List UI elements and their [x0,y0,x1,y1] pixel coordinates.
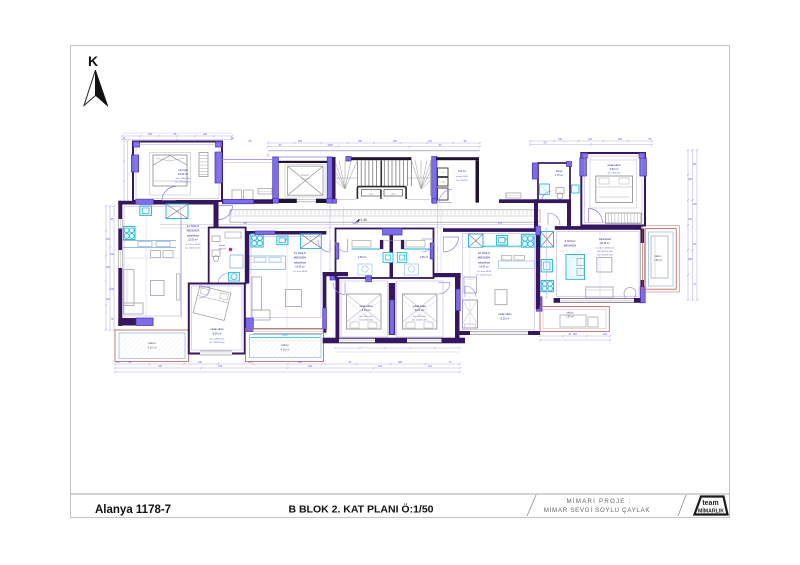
svg-text:148: 148 [218,365,223,368]
svg-text:140: 140 [243,222,248,225]
svg-text:150: 150 [558,138,563,141]
svg-text:yatak odası: yatak odası [359,304,373,308]
svg-text:4.20 m²: 4.20 m² [148,346,157,350]
svg-text:kln 120/200 den: kln 120/200 den [476,275,492,277]
svg-text:230: 230 [106,298,111,301]
svg-text:mak.: mak. [441,182,446,184]
svg-text:305: 305 [358,140,363,143]
svg-text:19.00 m²: 19.00 m² [479,266,489,269]
svg-text:110: 110 [428,365,432,368]
svg-text:1035: 1035 [327,144,333,147]
svg-text:11 NOLU: 11 NOLU [187,224,199,228]
svg-text:2+1 dsm 28/50 den: 2+1 dsm 28/50 den [596,248,616,250]
svg-text:130: 130 [378,365,383,368]
svg-text:sahanlıktan: sahanlıktan [599,238,612,241]
svg-text:8.20 m²: 8.20 m² [415,308,424,312]
svg-text:dsm 28/50 den: dsm 28/50 den [210,339,225,341]
svg-text:MESKEN: MESKEN [294,256,307,260]
svg-text:20.36 m²: 20.36 m² [600,242,610,245]
svg-text:255: 255 [298,140,303,143]
svg-text:balkon: balkon [566,312,574,315]
svg-text:y.angi 55/85: y.angi 55/85 [456,176,469,178]
svg-text:255: 255 [573,333,578,336]
svg-text:kln 120/200 den: kln 120/200 den [412,319,426,321]
svg-text:190: 190 [148,133,153,136]
svg-text:kln 120/200 den: kln 120/200 den [185,248,201,250]
svg-text:260: 260 [618,138,623,141]
svg-text:kln 120/200 den: kln 120/200 den [209,342,225,344]
svg-text:240: 240 [308,365,313,368]
svg-text:120: 120 [693,203,698,206]
svg-text:9.60 m²: 9.60 m² [610,167,619,171]
svg-text:9.00 m²: 9.00 m² [213,332,222,336]
svg-text:kln 120/200 den: kln 120/200 den [597,251,613,253]
svg-text:2.35 m²: 2.35 m² [420,256,428,259]
svg-text:175: 175 [498,222,503,225]
svg-text:kln 120/200 den: kln 120/200 den [175,182,191,184]
svg-text:120: 120 [110,253,115,256]
svg-text:120: 120 [158,365,163,368]
svg-text:120: 120 [588,138,593,141]
svg-text:11 NOLU: 11 NOLU [294,251,306,255]
svg-text:120: 120 [203,133,208,136]
svg-text:yatak odası: yatak odası [210,327,224,331]
svg-text:as.: as. [442,172,445,174]
svg-text:2.55 m²: 2.55 m² [566,316,574,319]
svg-text:2.8 m²: 2.8 m² [458,169,466,173]
svg-text:sahanlıktan: sahanlıktan [478,262,491,265]
svg-text:2.35 m²: 2.35 m² [358,256,366,259]
svg-text:260: 260 [393,140,398,143]
svg-text:165: 165 [603,333,608,336]
svg-text:22.00 m²: 22.00 m² [188,239,198,242]
svg-text:160: 160 [106,238,111,241]
svg-text:1.75 m²: 1.75 m² [555,174,563,177]
svg-text:K: K [88,53,98,69]
svg-text:4.60 m²: 4.60 m² [218,247,226,250]
svg-text:dnm 90/200 den: dnm 90/200 den [597,255,614,257]
svg-text:1+1 dsm 28/50: 1+1 dsm 28/50 [477,271,492,273]
svg-text:dsm 28/50 den: dsm 28/50 den [176,178,191,180]
svg-text:188: 188 [688,258,693,261]
svg-text:105: 105 [110,288,115,291]
svg-text:MİMAR SEVGİ SOYLU ÇAYLAK: MİMAR SEVGİ SOYLU ÇAYLAK [544,507,651,514]
svg-text:Alanya 1178-7: Alanya 1178-7 [95,504,171,516]
svg-text:19.00 m²: 19.00 m² [295,266,305,269]
svg-text:balkon: balkon [654,255,662,258]
svg-text:110: 110 [248,361,252,364]
svg-text:8.20 m²: 8.20 m² [501,317,510,321]
svg-text:100x125: 100x125 [301,179,310,181]
svg-text:sahanlıktan: sahanlıktan [187,235,200,238]
svg-text:240: 240 [282,333,287,337]
svg-text:MİMARLIK: MİMARLIK [698,508,724,515]
svg-text:130: 130 [428,140,433,143]
svg-text:yatak odası: yatak odası [498,312,512,316]
svg-text:+1.40: +1.40 [359,218,367,222]
svg-text:kln 120/200 den: kln 120/200 den [359,319,373,321]
svg-text:MESKEN: MESKEN [187,229,200,233]
svg-text:dsm 28/50 den: dsm 28/50 den [607,173,620,175]
svg-text:balkon: balkon [148,341,156,345]
svg-text:dsm 28/50 den: dsm 28/50 den [359,316,372,318]
svg-text:asansör: asansör [301,174,310,177]
svg-text:9.20 m²: 9.20 m² [362,308,371,312]
svg-text:çatı katı: çatı katı [178,168,187,172]
svg-text:1+1 dsm 28/50: 1+1 dsm 28/50 [293,271,308,273]
svg-text:9.00 m²: 9.00 m² [281,348,290,352]
svg-text:yatak odası: yatak odası [413,304,427,308]
svg-text:245: 245 [688,178,693,181]
svg-text:dsm 28/50 den: dsm 28/50 den [413,316,426,318]
svg-text:385: 385 [398,361,403,364]
svg-text:10 NOLU: 10 NOLU [478,251,491,255]
svg-text:10.00 m²: 10.00 m² [178,172,188,176]
svg-text:9 NOLU: 9 NOLU [565,239,576,243]
svg-text:270: 270 [688,218,693,221]
svg-text:banyo: banyo [556,170,563,173]
svg-text:240: 240 [198,361,203,364]
svg-text:MESKEN: MESKEN [564,244,577,248]
svg-text:kln 120/210: kln 120/210 [456,180,468,182]
svg-text:balkon: balkon [281,343,289,347]
svg-text:345: 345 [106,266,111,269]
svg-text:banyo: banyo [219,245,226,247]
svg-text:240: 240 [298,361,303,364]
svg-text:1463: 1463 [352,222,358,225]
svg-text:3+1 dsm 28/50: 3+1 dsm 28/50 [186,244,201,246]
svg-text:MESKEN: MESKEN [478,256,491,260]
svg-text:sahanlıktan: sahanlıktan [294,262,307,265]
svg-text:2.86 m²: 2.86 m² [654,259,662,262]
svg-text:yatak odası: yatak odası [607,163,621,167]
svg-text:B BLOK 2. KAT PLANI Ö:1/50: B BLOK 2. KAT PLANI Ö:1/50 [288,503,433,516]
svg-text:MİMARİ PROJE :: MİMARİ PROJE : [567,498,632,505]
svg-text:team: team [702,500,718,507]
